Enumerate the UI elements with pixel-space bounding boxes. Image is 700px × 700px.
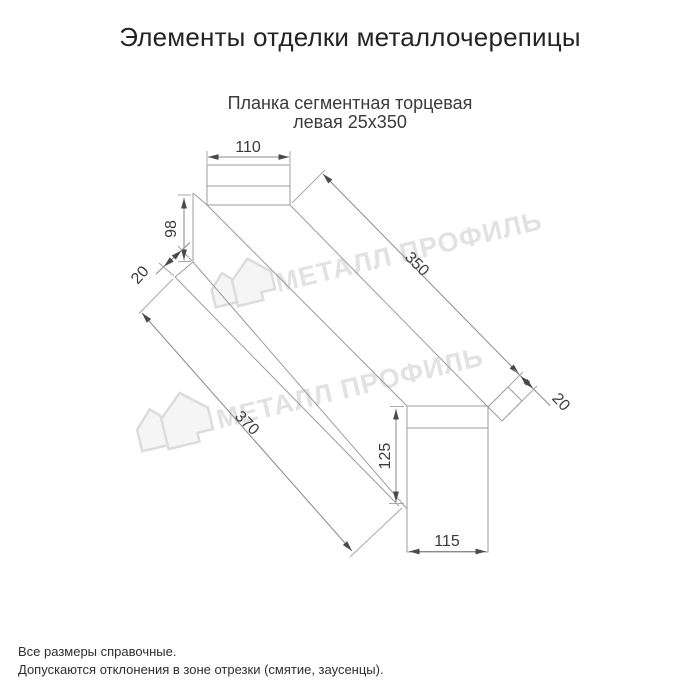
dimension-label-98: 98 <box>163 220 180 238</box>
dimension-label-20-left: 20 <box>128 263 153 288</box>
footnotes: Все размеры справочные. Допускаются откл… <box>18 643 384 679</box>
drawing-svg: МЕТАЛЛ ПРОФИЛЬ МЕТАЛЛ ПРОФИЛЬ <box>0 0 700 700</box>
dimension-label-125: 125 <box>377 443 394 470</box>
footnote-1: Все размеры справочные. <box>18 643 384 661</box>
watermark-upper: МЕТАЛЛ ПРОФИЛЬ <box>206 190 545 313</box>
dimension-labels: 110 98 20 350 20 370 125 115 <box>128 139 573 550</box>
dimension-label-110: 110 <box>235 139 261 156</box>
footnote-2: Допускаются отклонения в зоне отрезки (с… <box>18 661 384 679</box>
watermark-text-upper: МЕТАЛЛ ПРОФИЛЬ <box>272 205 545 298</box>
dimension-label-115: 115 <box>434 533 460 550</box>
watermark-lower: МЕТАЛЛ ПРОФИЛЬ <box>131 322 487 455</box>
dimension-label-20-right: 20 <box>548 390 573 415</box>
watermark-logo-upper <box>206 254 277 311</box>
technical-drawing-page: Элементы отделки металлочерепицы Планка … <box>0 0 700 700</box>
watermark-logo-lower <box>131 387 215 455</box>
